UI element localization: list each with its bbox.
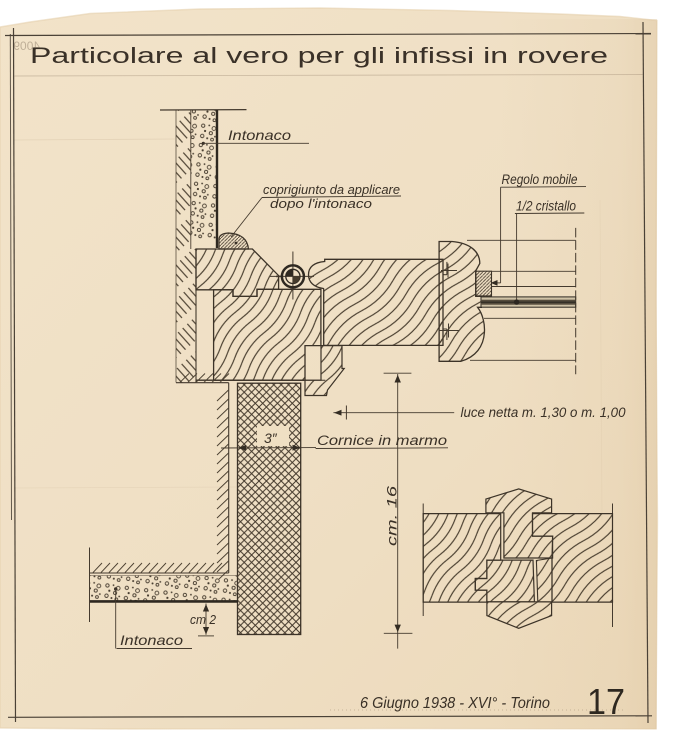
svg-text:17: 17 bbox=[587, 681, 625, 722]
svg-text:3″: 3″ bbox=[264, 430, 278, 446]
svg-text:cm. 16: cm. 16 bbox=[385, 485, 400, 546]
svg-text:Cornice in marmo: Cornice in marmo bbox=[317, 433, 448, 448]
svg-text:Regolo mobile: Regolo mobile bbox=[502, 172, 578, 187]
svg-text:6 Giugno 1938 - XVI° - Torino: 6 Giugno 1938 - XVI° - Torino bbox=[360, 695, 550, 712]
svg-text:Intonaco: Intonaco bbox=[120, 632, 183, 648]
svg-text:Intonaco: Intonaco bbox=[228, 127, 291, 143]
svg-text:Particolare al vero per gli in: Particolare al vero per gli infissi in r… bbox=[30, 43, 608, 68]
svg-text:cm 2: cm 2 bbox=[190, 612, 217, 627]
svg-text:1/2 cristallo: 1/2 cristallo bbox=[516, 199, 576, 214]
svg-text:coprigiunto da applicare: coprigiunto da applicare bbox=[263, 182, 400, 197]
svg-text:dopo l'intonaco: dopo l'intonaco bbox=[270, 196, 372, 211]
svg-text:luce netta m. 1,30 o m. 1,00: luce netta m. 1,30 o m. 1,00 bbox=[461, 405, 626, 420]
